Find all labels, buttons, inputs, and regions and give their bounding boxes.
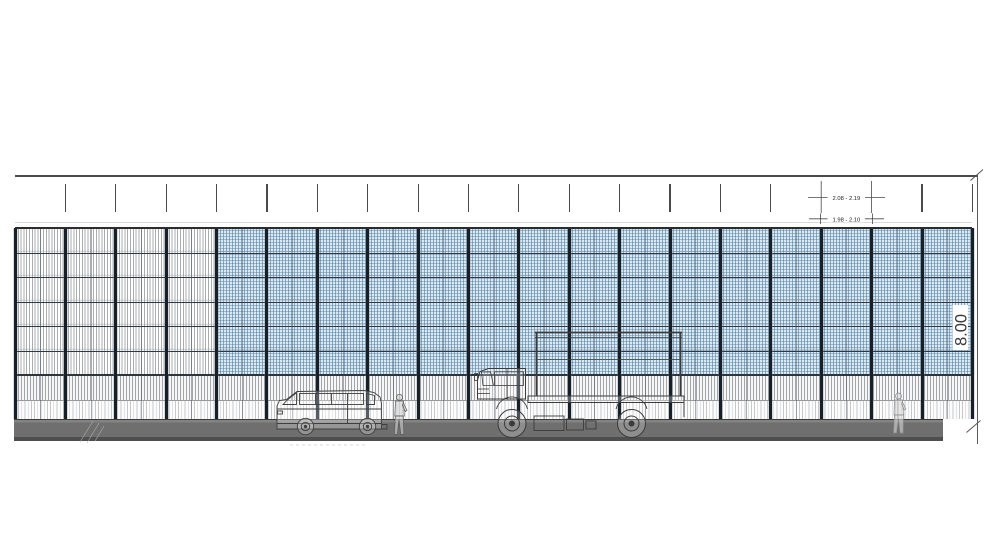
wall-post: [669, 228, 672, 419]
post-tick: [115, 184, 116, 212]
wall-post: [870, 228, 873, 419]
post-tick: [317, 184, 318, 212]
wall-post: [971, 228, 974, 419]
panel-center-stud: [91, 228, 92, 419]
post-tick: [468, 184, 469, 212]
height-dimension-line: [977, 175, 978, 444]
panel-center-stud: [594, 228, 595, 419]
post-tick: [972, 184, 973, 212]
panel-center-stud: [846, 228, 847, 419]
wall-top-edge: [15, 227, 972, 229]
wall-post: [215, 228, 218, 419]
panel-center-stud: [746, 228, 747, 419]
panel-center-stud: [544, 228, 545, 419]
top-reference-line: [15, 175, 977, 177]
post-tick: [569, 184, 570, 212]
wall-post: [316, 228, 319, 419]
panel-center-stud: [141, 228, 142, 419]
post-tick: [518, 184, 519, 212]
panel-center-stud: [494, 228, 495, 419]
panel-center-stud: [242, 228, 243, 419]
panel-width-top-label: 2.08 - 2.19: [833, 196, 861, 202]
wall-cap-line: [15, 222, 972, 223]
post-tick: [720, 184, 721, 212]
post-tick: [166, 184, 167, 212]
panel-center-stud: [40, 228, 41, 419]
panel-center-stud: [393, 228, 394, 419]
barrier-wall: [15, 228, 972, 419]
panel-center-stud: [343, 228, 344, 419]
road-surface: [14, 419, 943, 437]
post-tick: [367, 184, 368, 212]
panel-center-stud: [695, 228, 696, 419]
post-tick: [770, 184, 771, 212]
post-tick: [65, 184, 66, 212]
post-tick: [669, 184, 670, 212]
wall-post: [719, 228, 722, 419]
panel-width-dimension-top: 2.08 - 2.19: [808, 181, 885, 213]
wall-post: [165, 228, 168, 419]
panel-center-stud: [443, 228, 444, 419]
wall-post: [921, 228, 924, 419]
wall-post: [820, 228, 823, 419]
post-tick: [921, 184, 922, 212]
panel-center-stud: [292, 228, 293, 419]
wall-post: [366, 228, 369, 419]
wall-post: [568, 228, 571, 419]
wall-post: [467, 228, 470, 419]
panel-center-stud: [947, 228, 948, 419]
road-shadow-strip: [14, 437, 943, 442]
wall-post: [14, 228, 17, 419]
panel-center-stud: [897, 228, 898, 419]
wall-post: [618, 228, 621, 419]
panel-center-stud: [191, 228, 192, 419]
wall-post: [769, 228, 772, 419]
wall-post: [265, 228, 268, 419]
wall-post: [517, 228, 520, 419]
wall-post: [114, 228, 117, 419]
elevation-drawing: 2.08 - 2.19 1.98 - 2.10 8.00: [0, 0, 990, 555]
post-tick: [216, 184, 217, 212]
wall-post: [417, 228, 420, 419]
post-tick: [619, 184, 620, 212]
panel-center-stud: [796, 228, 797, 419]
wall-post: [64, 228, 67, 419]
post-tick: [418, 184, 419, 212]
post-tick: [266, 184, 267, 212]
panel-center-stud: [645, 228, 646, 419]
